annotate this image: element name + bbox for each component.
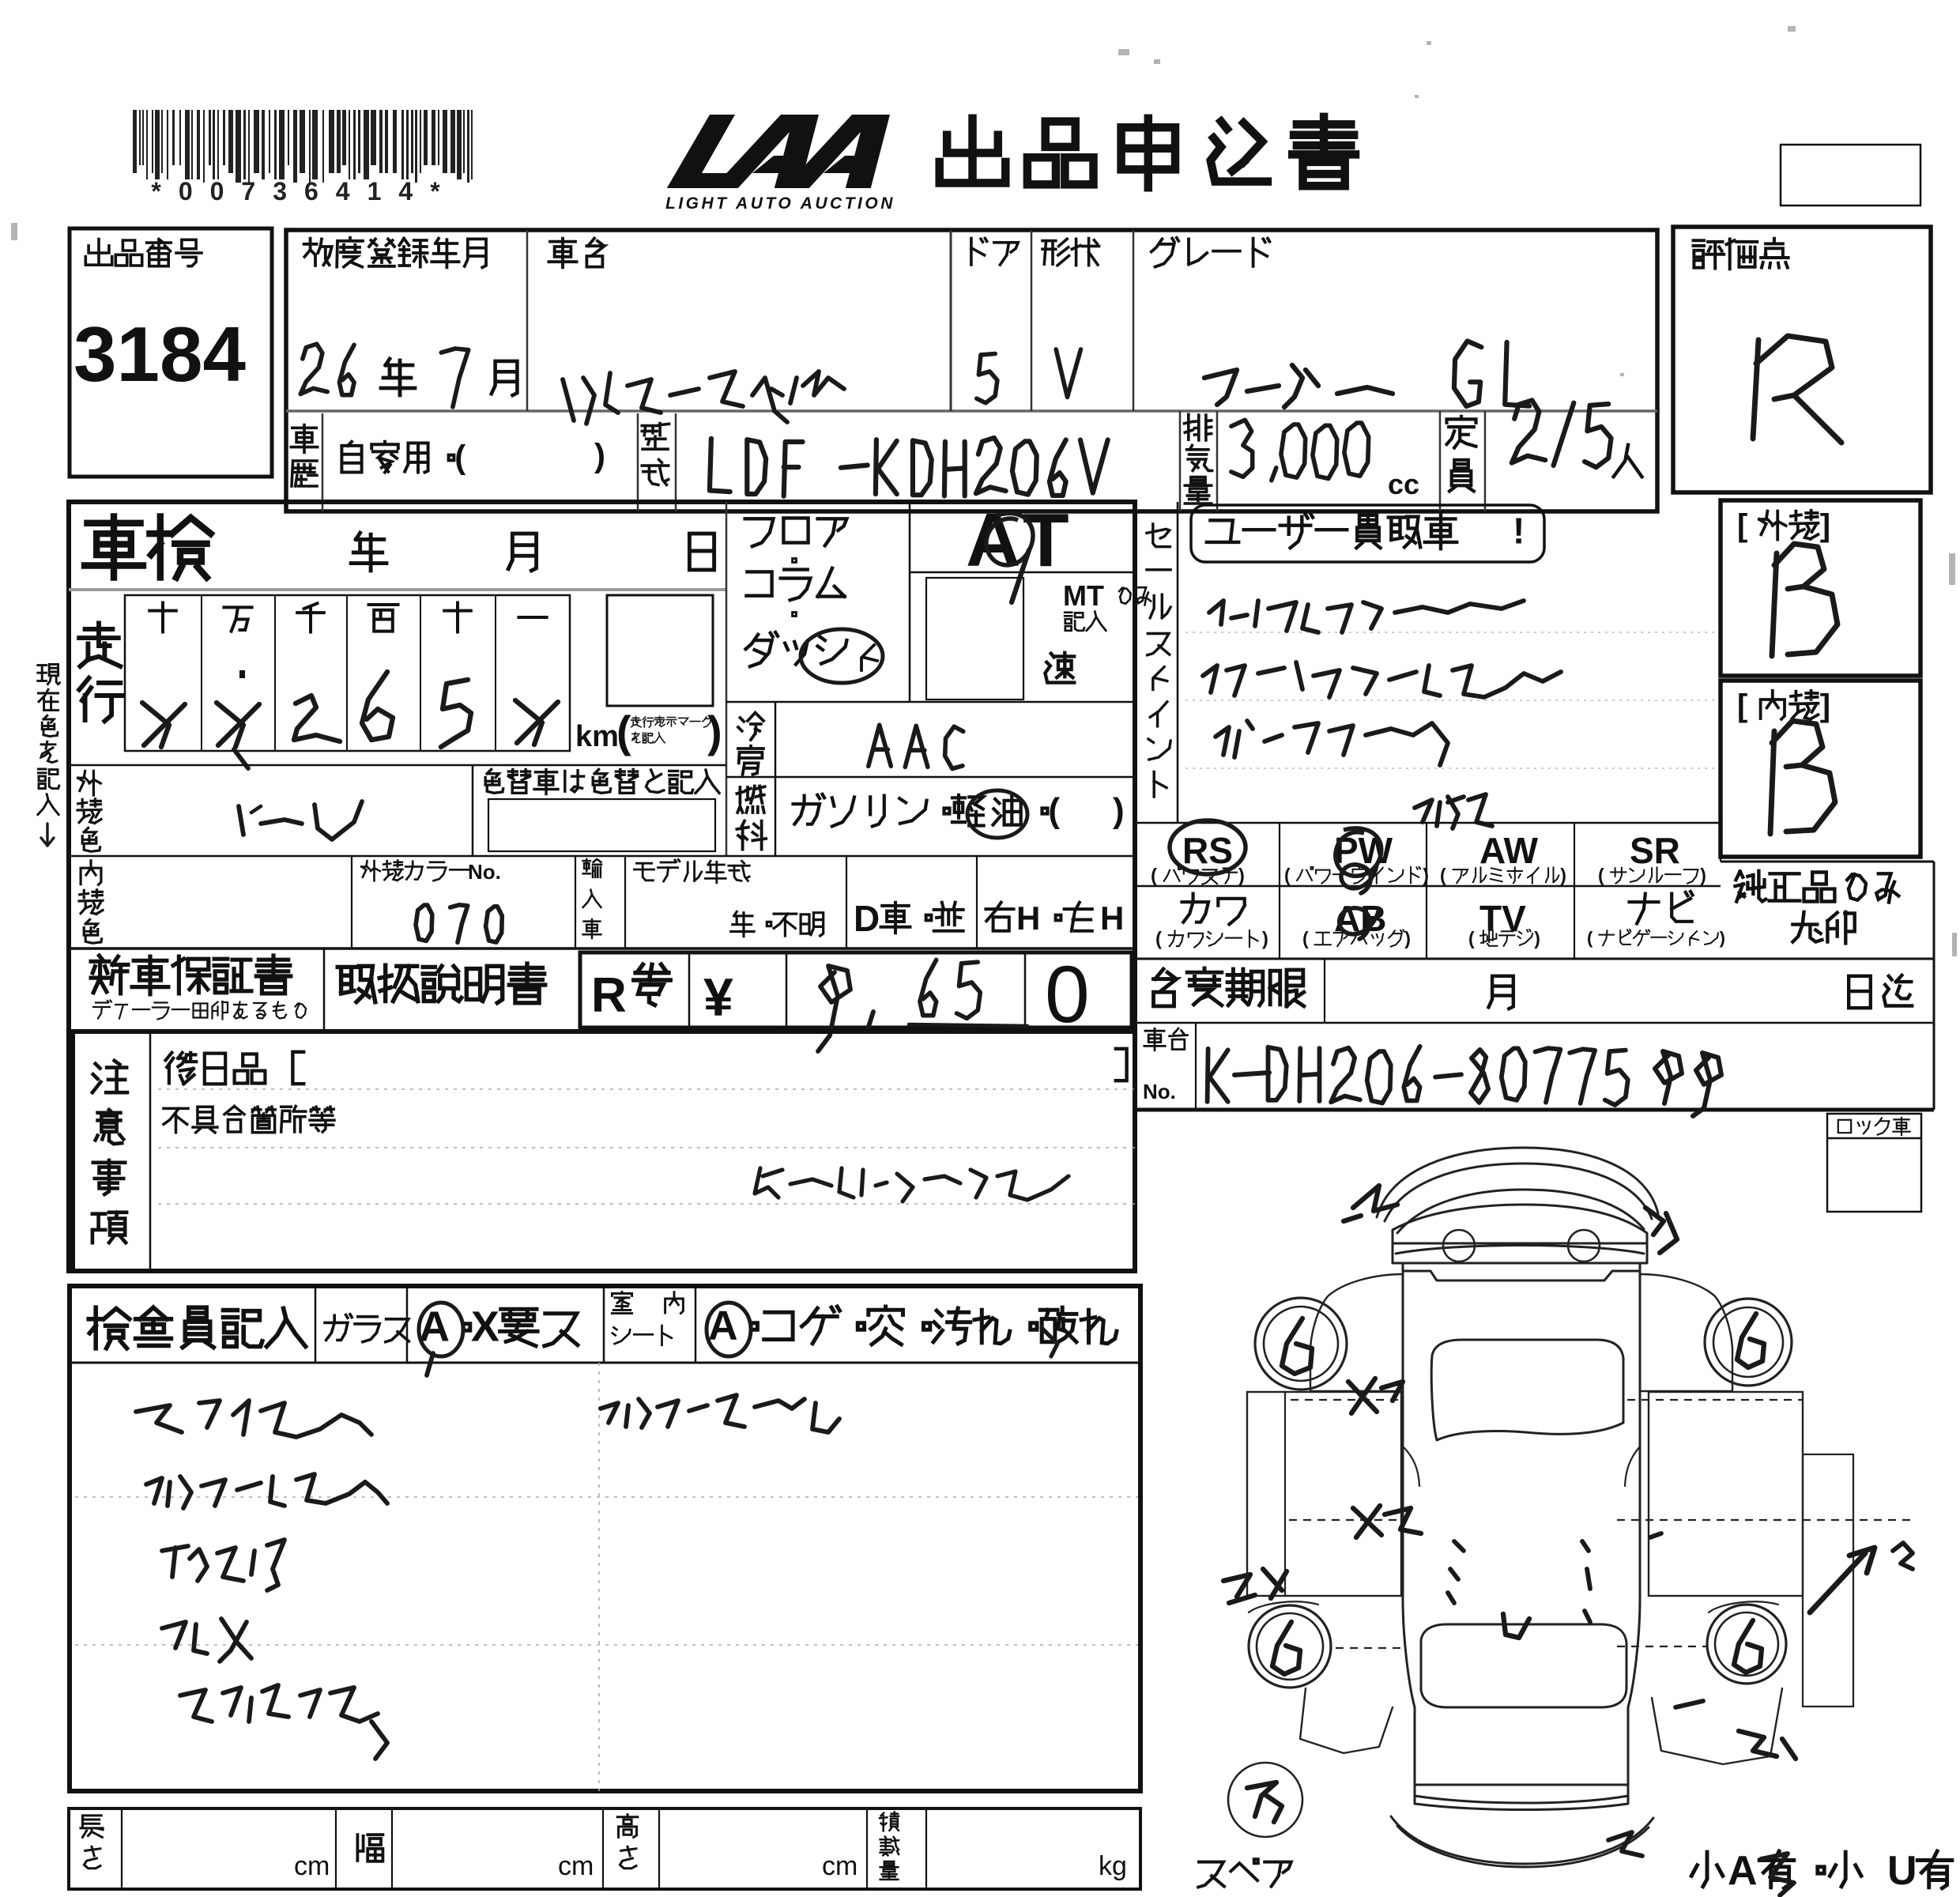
svg-text:(: ( (454, 438, 465, 475)
svg-text:): ) (707, 707, 722, 756)
svg-text:No.: No. (468, 860, 501, 884)
svg-text:(: ( (1151, 866, 1157, 887)
svg-text:X: X (471, 1303, 499, 1350)
svg-text:): ) (1700, 865, 1706, 885)
svg-text:(: ( (1587, 928, 1593, 948)
svg-text:D: D (854, 898, 880, 939)
svg-text:H: H (1100, 899, 1124, 937)
svg-text:kg: kg (1099, 1851, 1127, 1881)
svg-text:cm: cm (822, 1851, 857, 1881)
svg-text:RS: RS (1182, 830, 1233, 871)
svg-text:[: [ (1737, 688, 1747, 723)
svg-text:*00736414*: *00736414* (151, 177, 457, 206)
svg-text:cm: cm (558, 1851, 594, 1881)
svg-text:): ) (1238, 866, 1245, 887)
svg-text:): ) (1262, 929, 1268, 950)
svg-text:(: ( (1440, 865, 1446, 885)
svg-text:]: ] (1820, 508, 1830, 543)
svg-text:cm: cm (294, 1851, 330, 1881)
svg-text:(: ( (1155, 929, 1162, 950)
svg-text:(: ( (1302, 928, 1309, 948)
svg-text:): ) (1534, 928, 1540, 948)
svg-text:T: T (1023, 498, 1069, 583)
svg-text:): ) (1404, 928, 1411, 948)
svg-text:): ) (1113, 791, 1125, 830)
svg-text:3184: 3184 (73, 311, 246, 398)
svg-text:km: km (575, 720, 619, 753)
svg-text:(: ( (1284, 865, 1291, 885)
svg-text:): ) (1423, 865, 1429, 885)
svg-text:A: A (966, 498, 1020, 583)
svg-text:): ) (594, 436, 605, 473)
svg-text:(: ( (1468, 928, 1475, 948)
svg-text:): ) (1720, 928, 1725, 948)
svg-text:H: H (1016, 899, 1040, 937)
svg-text:!: ! (1513, 511, 1525, 552)
svg-text:U: U (1887, 1848, 1917, 1894)
svg-text:(: ( (1048, 791, 1060, 830)
svg-text:No.: No. (1143, 1080, 1176, 1103)
svg-text:SR: SR (1630, 830, 1680, 871)
svg-text:cc: cc (1388, 468, 1419, 500)
svg-text:AW: AW (1479, 830, 1539, 871)
svg-text:MT: MT (1063, 579, 1104, 612)
svg-text:(: ( (616, 707, 631, 756)
svg-text:(: ( (1598, 865, 1604, 885)
svg-text:[: [ (1737, 508, 1747, 543)
svg-text:R: R (591, 968, 627, 1023)
svg-text:0: 0 (1045, 949, 1090, 1039)
svg-text:): ) (1560, 865, 1566, 885)
svg-text:¥: ¥ (703, 967, 733, 1028)
svg-text:A: A (1728, 1848, 1758, 1894)
svg-text:]: ] (1820, 688, 1830, 723)
svg-text:LIGHT AUTO AUCTION: LIGHT AUTO AUCTION (665, 194, 895, 213)
